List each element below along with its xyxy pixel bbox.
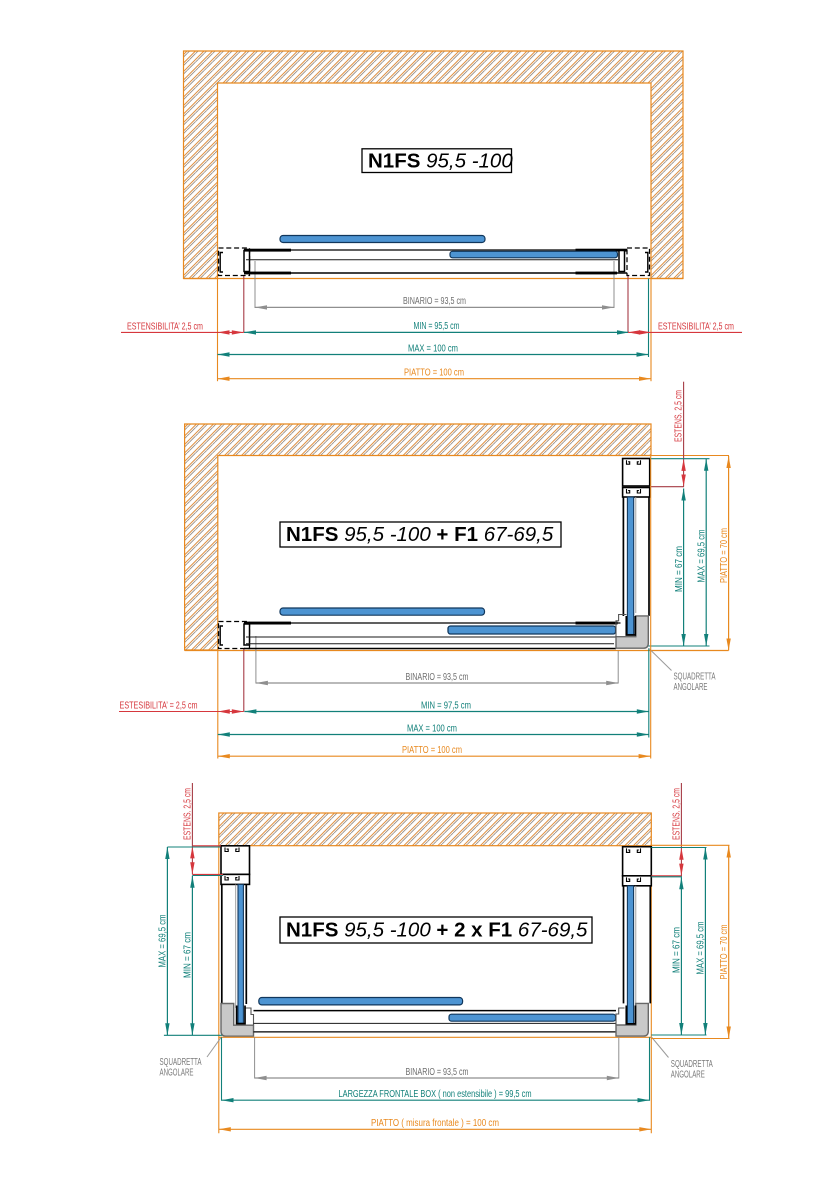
svg-text:ESTENS. 2,5 cm: ESTENS. 2,5 cm xyxy=(671,788,682,840)
svg-text:PIATTO = 70 cm: PIATTO = 70 cm xyxy=(719,925,730,980)
svg-text:BINARIO = 93,5 cm: BINARIO = 93,5 cm xyxy=(403,296,466,307)
svg-text:ANGOLARE: ANGOLARE xyxy=(674,682,708,693)
svg-text:SQUADRETTA: SQUADRETTA xyxy=(674,672,716,683)
svg-text:MAX = 69,5 cm: MAX = 69,5 cm xyxy=(696,530,707,583)
svg-text:MAX = 69,5 cm: MAX = 69,5 cm xyxy=(696,922,707,975)
svg-text:MIN = 67 cm: MIN = 67 cm xyxy=(672,927,683,973)
svg-text:MIN = 67 cm: MIN = 67 cm xyxy=(183,932,194,978)
svg-text:PIATTO = 70 cm: PIATTO = 70 cm xyxy=(719,528,730,583)
svg-text:ESTENS. 2,5 cm: ESTENS. 2,5 cm xyxy=(674,390,685,442)
svg-text:N1FS 95,5 -100 + 2 x F1 67-69,: N1FS 95,5 -100 + 2 x F1 67-69,5 xyxy=(286,919,588,942)
svg-text:SQUADRETTA: SQUADRETTA xyxy=(671,1059,713,1070)
svg-text:ANGOLARE: ANGOLARE xyxy=(160,1067,194,1078)
svg-text:SQUADRETTA: SQUADRETTA xyxy=(160,1057,202,1068)
svg-text:N1FS 95,5 -100 + F1 67-69,5: N1FS 95,5 -100 + F1 67-69,5 xyxy=(286,523,554,546)
svg-text:MAX = 100 cm: MAX = 100 cm xyxy=(408,343,458,354)
svg-text:MIN = 67 cm: MIN = 67 cm xyxy=(674,546,685,592)
svg-text:ESTENSIBILITA’ 2,5 cm: ESTENSIBILITA’ 2,5 cm xyxy=(658,321,734,332)
svg-text:ANGOLARE: ANGOLARE xyxy=(671,1069,705,1080)
svg-text:BINARIO = 93,5 cm: BINARIO = 93,5 cm xyxy=(406,1067,469,1078)
svg-text:MAX = 69,5 cm: MAX = 69,5 cm xyxy=(158,915,169,968)
svg-text:ESTENS. 2,5 cm: ESTENS. 2,5 cm xyxy=(182,788,193,840)
svg-text:MAX = 100 cm: MAX = 100 cm xyxy=(407,723,457,734)
svg-text:ESTENSIBILITA’ 2,5 cm: ESTENSIBILITA’ 2,5 cm xyxy=(127,321,203,332)
svg-text:MIN = 97,5 cm: MIN = 97,5 cm xyxy=(421,700,471,711)
svg-text:PIATTO ( misura frontale ) = 1: PIATTO ( misura frontale ) = 100 cm xyxy=(371,1118,499,1129)
svg-text:LARGEZZA FRONTALE BOX ( non es: LARGEZZA FRONTALE BOX ( non estensibile … xyxy=(339,1089,532,1100)
svg-text:BINARIO = 93,5 cm: BINARIO = 93,5 cm xyxy=(406,672,469,683)
svg-text:N1FS 95,5 -100: N1FS 95,5 -100 xyxy=(368,149,513,172)
svg-text:PIATTO = 100 cm: PIATTO = 100 cm xyxy=(402,745,462,756)
svg-text:PIATTO = 100 cm: PIATTO = 100 cm xyxy=(404,368,464,379)
svg-text:ESTESIBILITA’ = 2,5 cm: ESTESIBILITA’ = 2,5 cm xyxy=(120,700,198,711)
svg-text:MIN = 95,5 cm: MIN = 95,5 cm xyxy=(414,321,460,332)
